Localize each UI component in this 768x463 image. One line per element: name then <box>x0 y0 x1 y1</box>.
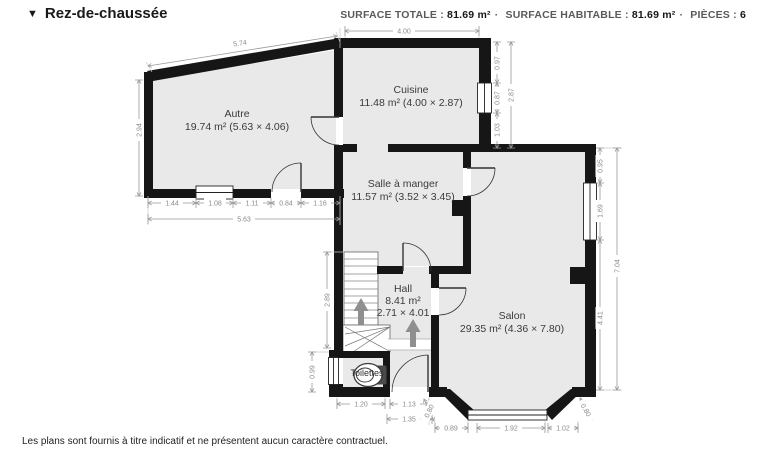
window-autre <box>196 186 233 199</box>
surface-totale-label: SURFACE TOTALE : <box>340 9 444 21</box>
room-salle-a-manger-passage <box>357 140 388 152</box>
dim-label: 1.03 <box>495 123 502 137</box>
room-label-toilettes: Toilettes <box>350 368 384 378</box>
separator-dot: · <box>679 9 683 21</box>
header: ▼ Rez-de-chaussée SURFACE TOTALE : 81.69… <box>0 0 768 30</box>
dim-label: 2.87 <box>509 88 516 102</box>
surface-habitable-value: 81.69 m² <box>632 9 676 21</box>
window-toilettes <box>329 358 339 385</box>
room-info-cuisine: 11.48 m² (4.00 × 2.87) <box>359 97 462 109</box>
dim-label: 0.97 <box>495 56 502 70</box>
dim-label: 1.69 <box>598 204 605 218</box>
room-info2-hall: 2.71 × 4.01 <box>377 307 430 319</box>
dim-label: 1.16 <box>313 201 327 208</box>
dim-label: 0.89 <box>444 426 458 433</box>
room-label-salon: Salon <box>499 310 526 322</box>
dim-label: 2.94 <box>137 123 144 137</box>
collapse-triangle-icon: ▼ <box>27 8 38 20</box>
dim-label: 1.20 <box>354 402 368 409</box>
room-cuisine <box>343 48 479 144</box>
dim-label: 0.87 <box>495 91 502 105</box>
dim-label: 4.41 <box>598 311 605 325</box>
dim-label: 0.84 <box>279 201 293 208</box>
dim-label: 2.89 <box>325 293 332 307</box>
dim-label: 1.08 <box>208 201 222 208</box>
floor-section-toggle[interactable]: ▼ Rez-de-chaussée <box>27 5 167 22</box>
floor-plan: 5.74 4.00 2.94 1.44 1.08 1.11 0.84 1.16 … <box>0 0 768 463</box>
room-info-salle-a-manger: 11.57 m² (3.52 × 3.45) <box>351 191 454 203</box>
dim-label: 1.92 <box>504 426 518 433</box>
dim-label: 1.13 <box>402 402 416 409</box>
dim-label: 1.35 <box>402 417 416 424</box>
dim-label: 7.04 <box>615 259 622 273</box>
dim-label: 5.63 <box>237 217 251 224</box>
room-label-autre: Autre <box>224 108 249 120</box>
surface-habitable-label: SURFACE HABITABLE : <box>506 9 629 21</box>
window-cuisine <box>478 83 492 113</box>
room-label-salle-a-manger: Salle à manger <box>368 178 439 190</box>
room-label-cuisine: Cuisine <box>393 84 428 96</box>
dim-label: 0.80 <box>424 404 436 419</box>
window-salon <box>584 183 597 240</box>
surface-totale-value: 81.69 m² <box>447 9 491 21</box>
room-info-autre: 19.74 m² (5.63 × 4.06) <box>185 121 289 133</box>
floor-title: Rez-de-chaussée <box>45 5 168 22</box>
disclaimer: Les plans sont fournis à titre indicatif… <box>22 436 388 447</box>
room-info-hall: 8.41 m² <box>385 295 421 307</box>
dim-label: 1.02 <box>556 426 570 433</box>
dim-label: 1.11 <box>245 201 258 208</box>
pieces-label: PIÈCES : <box>690 9 737 21</box>
room-info-salon: 29.35 m² (4.36 × 7.80) <box>460 323 564 335</box>
dim-label: 0.95 <box>598 159 605 173</box>
window-bay <box>468 410 547 420</box>
room-label-hall: Hall <box>394 283 412 295</box>
pieces-value: 6 <box>740 9 746 21</box>
dim-label: 0.99 <box>310 365 317 379</box>
floorplan-page: 5.74 4.00 2.94 1.44 1.08 1.11 0.84 1.16 … <box>0 0 768 463</box>
dim-label: 5.74 <box>233 39 248 48</box>
separator-dot: · <box>495 9 499 21</box>
surface-stats: SURFACE TOTALE : 81.69 m²· SURFACE HABIT… <box>340 9 746 21</box>
dim-label: 1.44 <box>165 201 179 208</box>
room-salon <box>471 152 585 390</box>
